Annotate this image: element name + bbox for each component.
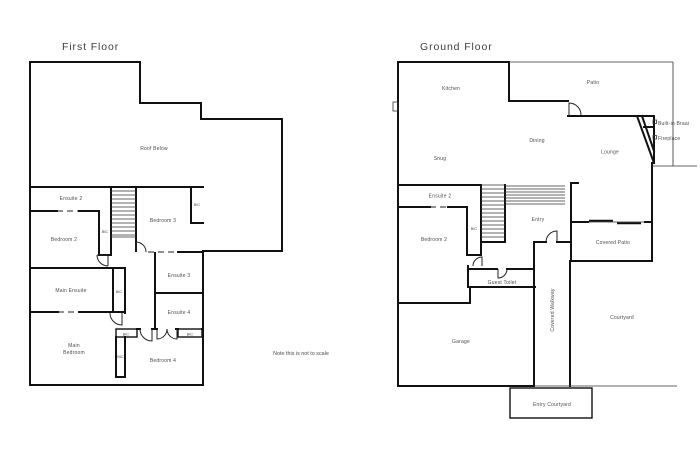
ground-floor-door-arcs [473,103,581,278]
room-label-bedroom3: Bedroom 3 [150,218,176,224]
room-label-covered-patio: Covered Patio [596,240,630,246]
room-label-ensuite3: Ensuite 3 [168,273,191,279]
closet-label-bic: BIC [123,332,130,337]
room-label-entry: Entry [532,217,545,223]
room-label-kitchen: Kitchen [442,86,460,92]
room-label-ensuite4: Ensuite 4 [168,310,191,316]
room-label-bedroom4: Bedroom 4 [150,358,176,364]
room-label-ensuite2-ff: Ensuite 2 [60,196,83,202]
room-label-main-bedroom-line2: Bedroom [63,350,85,356]
floor-plans-drawing: First Floor Roof Below Ensuite 2 Bedroom… [0,0,700,455]
room-label-entry-courtyard: Entry Courtyard [533,402,571,408]
first-floor-door-openings [57,211,178,312]
closet-label-bic: BIC [194,202,201,207]
room-label-bedroom2-ff: Bedroom 2 [51,237,77,243]
ground-floor-plan: Ground Floor Kitchen Patio Snug Dining L… [393,41,697,418]
annotation-fireplace: Fireplace [658,136,680,142]
room-label-main-ensuite: Main Ensuite [55,288,86,294]
closet-label-bic: BIC [471,226,478,231]
closet-label-bic: BIC [187,332,194,337]
annotation-built-in-braai: Built-in Braai [658,121,689,127]
room-label-dining: Dining [529,138,544,144]
first-floor-stairs [111,191,136,237]
floor-plans-page: First Floor Roof Below Ensuite 2 Bedroom… [0,0,700,455]
room-label-courtyard: Courtyard [610,315,634,321]
room-label-covered-walkway: Covered Walkway [550,288,556,331]
closet-label-bic: BIC [116,289,123,294]
ground-floor-stairs [481,185,505,237]
room-label-guest-toilet: Guest Toilet [488,280,517,286]
first-floor-plan: First Floor Roof Below Ensuite 2 Bedroom… [30,41,282,385]
ground-floor-title: Ground Floor [420,41,493,53]
room-label-ensuite2-gf: Ensuite 2 [429,194,452,200]
room-label-bedroom2-gf: Bedroom 2 [421,237,447,243]
closet-label-bic: BIC [102,229,109,234]
room-label-garage: Garage [452,339,470,345]
first-floor-title: First Floor [62,41,119,53]
room-label-snug: Snug [434,156,446,162]
closet-label-bic: BIC [117,354,124,359]
ground-floor-walls [398,62,654,386]
room-label-lounge: Lounge [601,150,619,156]
room-label-roof-below: Roof Below [140,146,168,152]
scale-note: Note this is not to scale [273,351,329,357]
stair-upper-flight-lines [505,186,565,204]
room-label-patio: Patio [587,80,599,86]
first-floor-door-arcs [97,242,177,341]
room-label-main-bedroom-line1: Main [68,343,80,349]
